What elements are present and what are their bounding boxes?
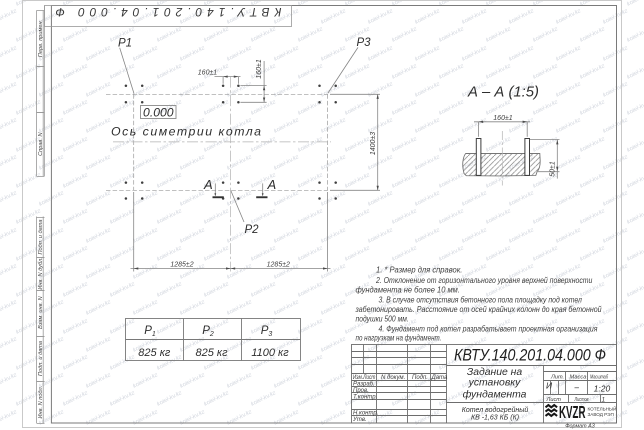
svg-text:А – А (1:5): А – А (1:5) bbox=[467, 85, 539, 101]
svg-text:3. В случае отсутствия бетонно: 3. В случае отсутствия бетонного пола пл… bbox=[379, 295, 583, 304]
svg-text:Изм.Лист: Изм.Лист bbox=[353, 375, 376, 381]
svg-text:825 кг: 825 кг bbox=[195, 347, 228, 359]
svg-text:1285±2: 1285±2 bbox=[267, 261, 290, 268]
svg-text:825 кг: 825 кг bbox=[138, 347, 171, 359]
svg-text:0.000: 0.000 bbox=[143, 106, 174, 120]
svg-text:Лит.: Лит. bbox=[550, 375, 564, 381]
svg-text:Подп.: Подп. bbox=[412, 375, 428, 381]
svg-text:–: – bbox=[573, 383, 579, 392]
svg-text:подушки 500 мм.: подушки 500 мм. bbox=[356, 314, 409, 323]
svg-text:Утв.: Утв. bbox=[352, 417, 367, 423]
svg-text:Формат А3: Формат А3 bbox=[565, 423, 595, 429]
svg-text:P2: P2 bbox=[245, 224, 260, 236]
svg-text:4. Фундамент под котел разраба: 4. Фундамент под котел разрабатывает про… bbox=[379, 324, 598, 333]
svg-text:160±1: 160±1 bbox=[493, 115, 513, 122]
svg-text:Т.контр.: Т.контр. bbox=[353, 394, 377, 400]
svg-text:1: 1 bbox=[602, 396, 606, 403]
svg-text:2. Отклонение от горизонтально: 2. Отклонение от горизонтального уровня … bbox=[375, 276, 593, 285]
svg-text:N докум.: N докум. bbox=[381, 375, 405, 381]
svg-text:P3: P3 bbox=[357, 37, 372, 49]
svg-text:Справ. N: Справ. N bbox=[38, 132, 44, 156]
svg-text:фундамента не более 10 мм.: фундамента не более 10 мм. bbox=[356, 286, 460, 295]
svg-text:забетонировать. Расстояние от: забетонировать. Расстояние от осей крайн… bbox=[355, 305, 602, 314]
svg-text:Взам. инв. N: Взам. инв. N bbox=[38, 295, 44, 329]
svg-text:по нагрузкам на фундамент.: по нагрузкам на фундамент. bbox=[356, 334, 442, 343]
svg-text:И: И bbox=[546, 380, 553, 390]
svg-text:фундамента: фундамента bbox=[463, 388, 527, 400]
svg-text:1285±2: 1285±2 bbox=[170, 261, 193, 268]
svg-text:Котел водогрейный: Котел водогрейный bbox=[462, 406, 529, 414]
svg-text:Н.контр.: Н.контр. bbox=[353, 411, 378, 417]
svg-text:1100 кг: 1100 кг bbox=[251, 347, 289, 359]
svg-text:Перв. примен.: Перв. примен. bbox=[38, 20, 44, 57]
svg-text:Подп. и дата: Подп. и дата bbox=[38, 219, 44, 254]
svg-text:Пров.: Пров. bbox=[353, 388, 369, 394]
svg-text:Ось симетрии котла: Ось симетрии котла bbox=[111, 124, 261, 138]
svg-text:Разраб.: Разраб. bbox=[353, 382, 375, 388]
svg-text:ЗАВОД РЭП: ЗАВОД РЭП bbox=[588, 412, 614, 417]
svg-text:А: А bbox=[267, 177, 277, 192]
svg-text:Дата: Дата bbox=[431, 375, 448, 381]
svg-text:Масса: Масса bbox=[570, 375, 587, 381]
svg-text:Масштаб: Масштаб bbox=[590, 375, 609, 381]
svg-text:160±1: 160±1 bbox=[198, 69, 218, 76]
svg-text:Подп. и дата: Подп. и дата bbox=[38, 341, 44, 376]
svg-text:1. * Размер для справок.: 1. * Размер для справок. bbox=[376, 266, 462, 275]
svg-text:160±1: 160±1 bbox=[256, 59, 263, 79]
svg-text:Инв. N подл.: Инв. N подл. bbox=[38, 386, 44, 419]
svg-text:Задание на: Задание на bbox=[467, 367, 523, 378]
svg-text:KVZR: KVZR bbox=[559, 402, 586, 422]
svg-text:1400±3: 1400±3 bbox=[370, 132, 377, 155]
svg-text:КОТЕЛЬНЫЙ: КОТЕЛЬНЫЙ bbox=[588, 405, 617, 412]
svg-text:50±1: 50±1 bbox=[549, 161, 556, 177]
svg-text:установку: установку bbox=[468, 378, 522, 389]
svg-text:Инв. N дубл.: Инв. N дубл. bbox=[38, 257, 44, 289]
svg-text:КВ -1,63 КБ (К): КВ -1,63 КБ (К) bbox=[471, 415, 519, 422]
svg-text:1:20: 1:20 bbox=[594, 384, 611, 394]
svg-text:КВТУ.140.201.04.000 Ф: КВТУ.140.201.04.000 Ф bbox=[454, 346, 606, 365]
svg-text:P1: P1 bbox=[118, 38, 132, 50]
svg-text:А: А bbox=[203, 177, 213, 192]
